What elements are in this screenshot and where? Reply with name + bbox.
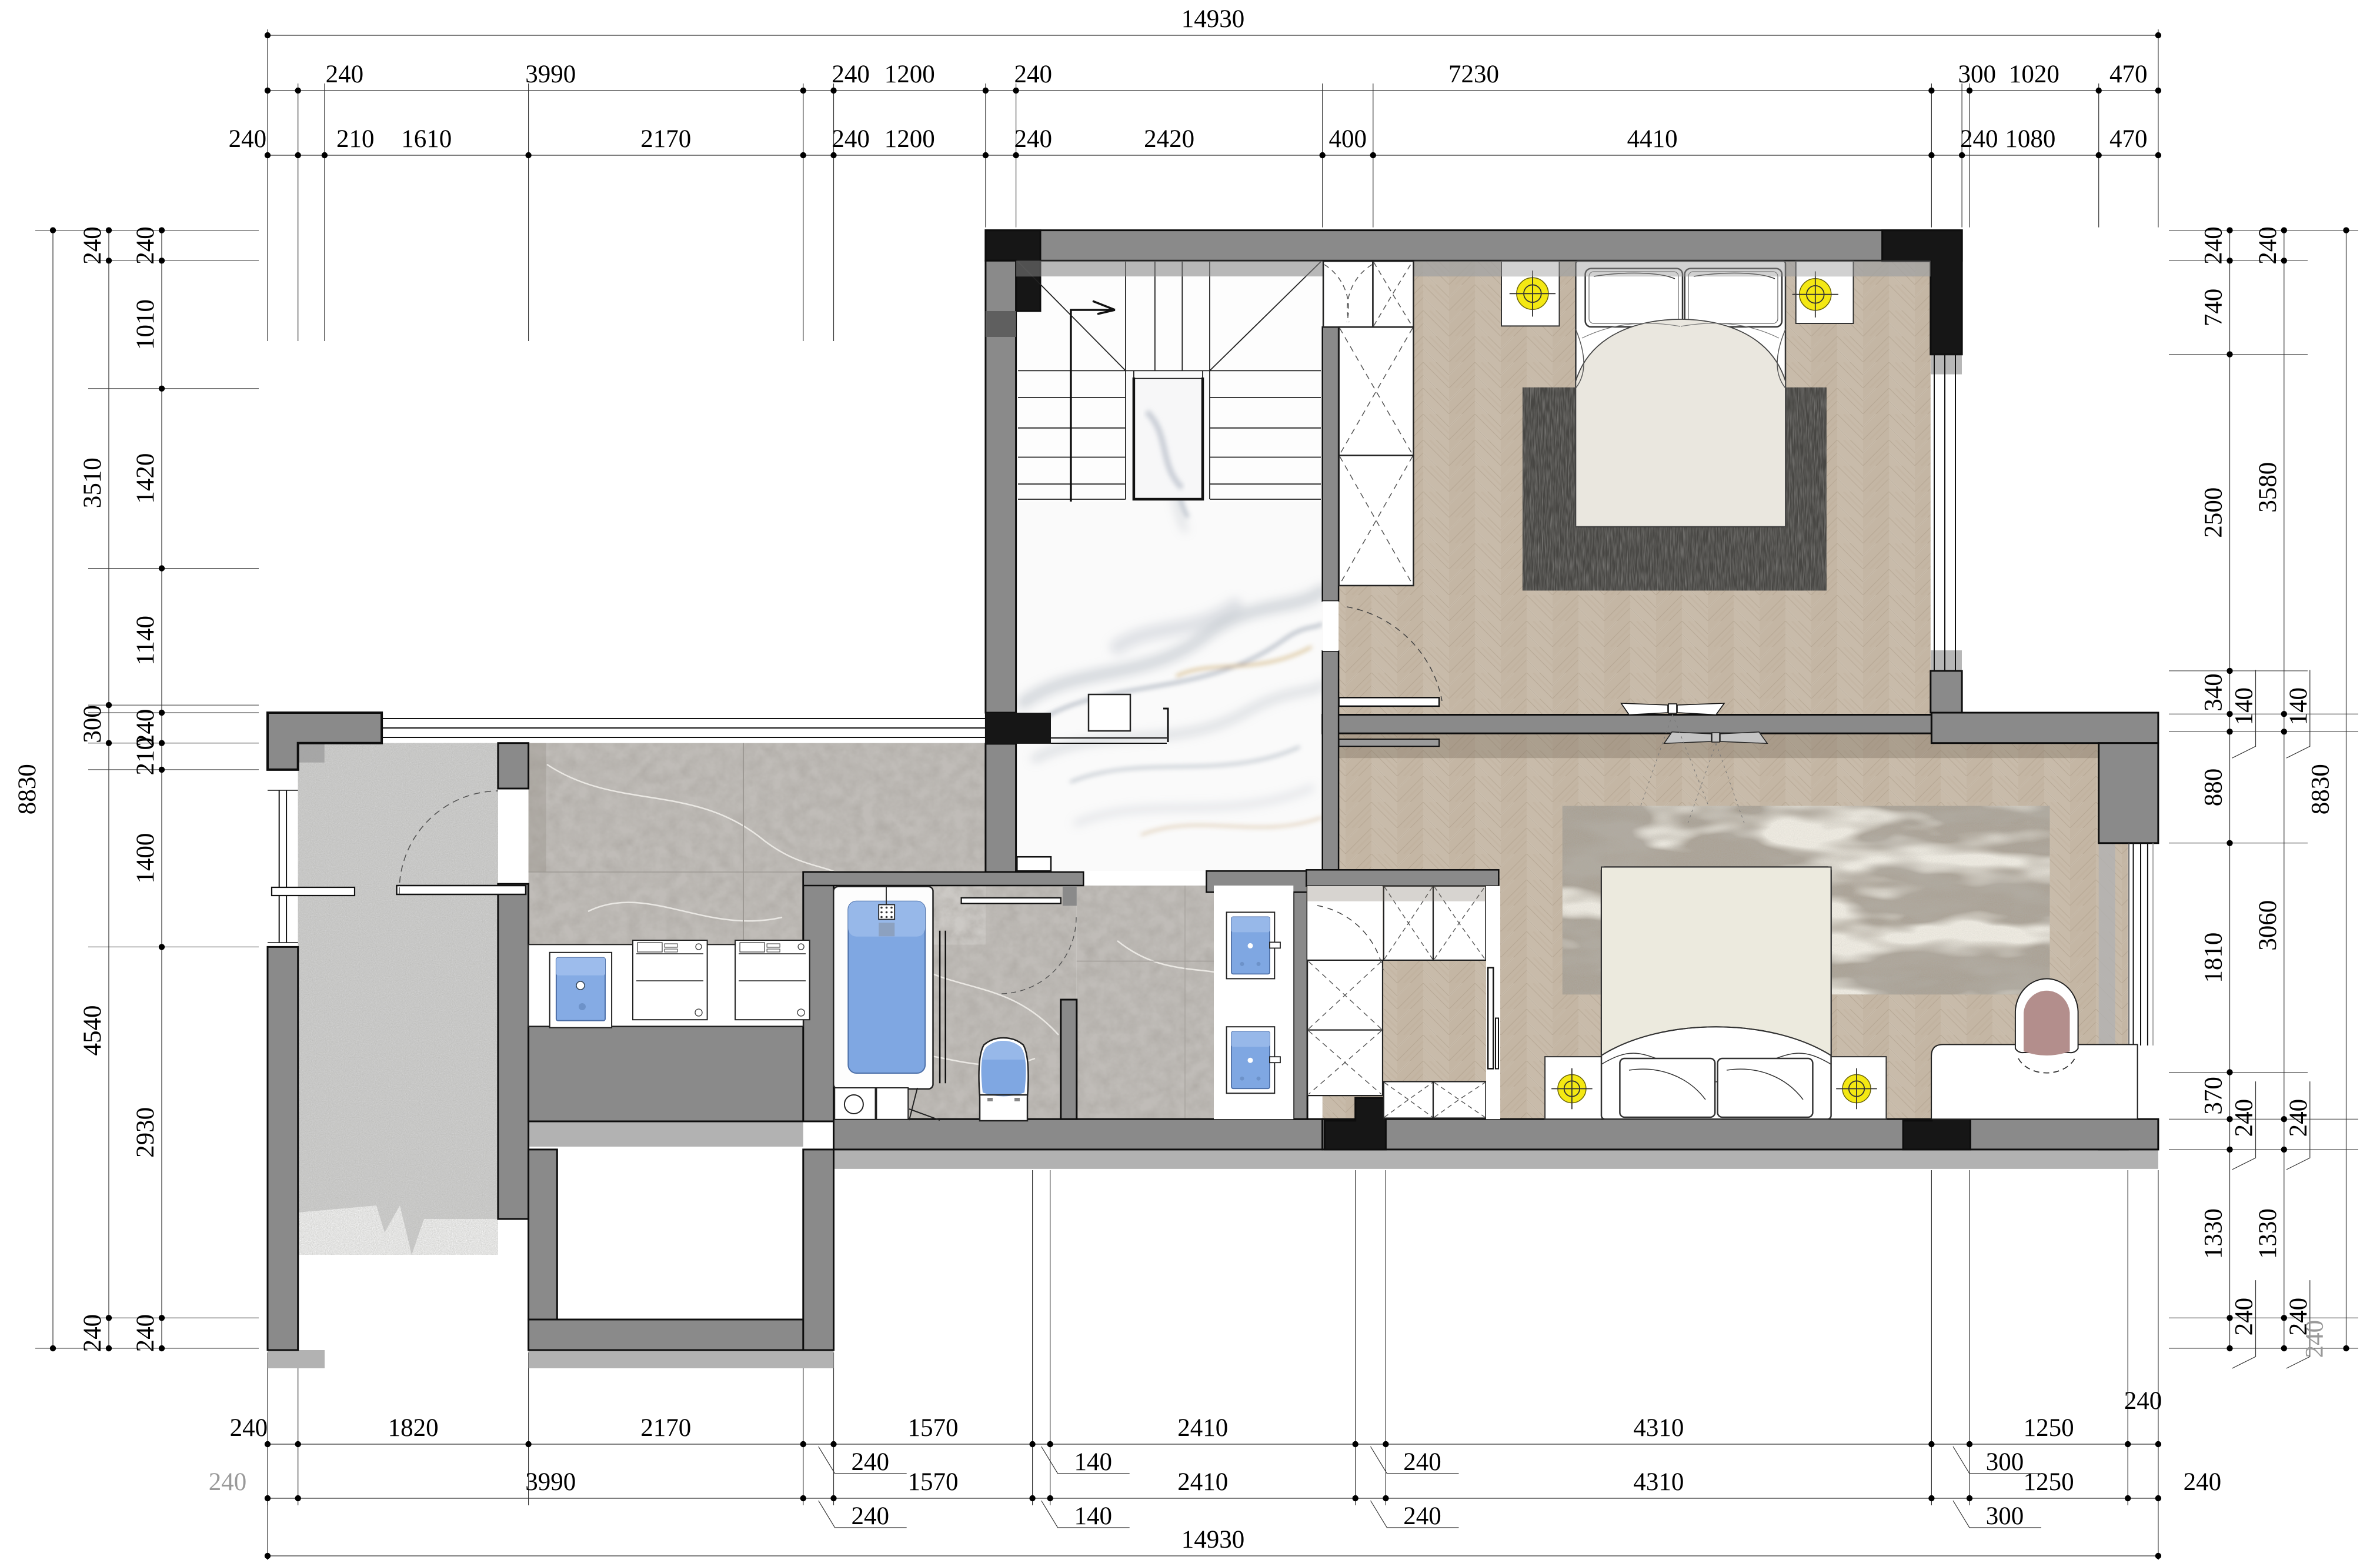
svg-text:7230: 7230 [1448, 61, 1499, 88]
svg-text:400: 400 [1329, 125, 1367, 153]
svg-text:340: 340 [2200, 673, 2228, 711]
svg-text:470: 470 [2109, 61, 2148, 88]
svg-text:3060: 3060 [2254, 900, 2282, 951]
svg-text:240: 240 [1403, 1448, 1441, 1476]
svg-text:240: 240 [79, 1314, 106, 1352]
svg-text:2930: 2930 [132, 1107, 159, 1158]
svg-text:240: 240 [326, 61, 364, 88]
svg-text:1080: 1080 [2005, 125, 2055, 153]
svg-text:240: 240 [2184, 1468, 2222, 1496]
svg-text:240: 240 [1403, 1502, 1441, 1530]
svg-text:1010: 1010 [132, 299, 159, 350]
svg-text:1570: 1570 [908, 1468, 959, 1496]
svg-text:210: 210 [336, 125, 375, 153]
svg-text:240: 240 [851, 1448, 889, 1476]
svg-text:240: 240 [2124, 1387, 2162, 1415]
svg-text:3580: 3580 [2254, 462, 2282, 513]
svg-text:1250: 1250 [2024, 1414, 2074, 1442]
svg-text:240: 240 [2200, 226, 2228, 265]
svg-text:210: 210 [132, 737, 159, 776]
svg-text:1400: 1400 [132, 833, 159, 884]
svg-text:1250: 1250 [2024, 1468, 2074, 1496]
svg-text:1810: 1810 [2200, 933, 2228, 983]
svg-text:4410: 4410 [1627, 125, 1678, 153]
svg-text:3990: 3990 [525, 1468, 576, 1496]
svg-text:2170: 2170 [640, 1414, 691, 1442]
svg-text:2410: 2410 [1177, 1414, 1228, 1442]
svg-text:2500: 2500 [2200, 487, 2228, 538]
svg-text:240: 240 [230, 1414, 268, 1442]
svg-text:3990: 3990 [525, 61, 576, 88]
svg-text:1420: 1420 [132, 453, 159, 504]
svg-text:240: 240 [209, 1468, 247, 1496]
svg-text:240: 240 [1014, 125, 1053, 153]
svg-text:300: 300 [1958, 61, 1996, 88]
svg-text:4310: 4310 [1633, 1468, 1684, 1496]
svg-text:1610: 1610 [401, 125, 452, 153]
svg-text:8830: 8830 [14, 764, 41, 814]
svg-text:1200: 1200 [884, 125, 935, 153]
svg-text:1330: 1330 [2254, 1208, 2282, 1259]
svg-text:240: 240 [79, 226, 106, 265]
svg-text:2410: 2410 [1177, 1468, 1228, 1496]
svg-text:140: 140 [2285, 687, 2312, 726]
svg-text:240: 240 [2285, 1099, 2312, 1137]
svg-text:140: 140 [1074, 1448, 1112, 1476]
svg-text:2170: 2170 [640, 125, 691, 153]
svg-text:300: 300 [79, 705, 106, 743]
svg-text:1330: 1330 [2200, 1208, 2228, 1259]
svg-text:1200: 1200 [884, 61, 935, 88]
svg-text:14930: 14930 [1181, 5, 1245, 33]
svg-text:1820: 1820 [388, 1414, 439, 1442]
svg-text:240: 240 [1014, 61, 1053, 88]
svg-text:240: 240 [132, 1314, 159, 1352]
svg-text:470: 470 [2109, 125, 2148, 153]
svg-text:740: 740 [2200, 289, 2228, 327]
svg-text:240: 240 [132, 226, 159, 265]
svg-text:4540: 4540 [79, 1006, 106, 1056]
svg-text:880: 880 [2200, 769, 2228, 807]
svg-text:300: 300 [1986, 1502, 2024, 1530]
svg-text:240: 240 [2231, 1099, 2258, 1137]
svg-text:240: 240 [2301, 1320, 2329, 1358]
svg-text:8830: 8830 [2307, 764, 2335, 814]
svg-text:240: 240 [2231, 1298, 2258, 1336]
svg-text:4310: 4310 [1633, 1414, 1684, 1442]
svg-text:240: 240 [832, 61, 870, 88]
svg-text:1020: 1020 [2009, 61, 2059, 88]
svg-text:240: 240 [832, 125, 870, 153]
svg-text:1570: 1570 [908, 1414, 959, 1442]
svg-text:240: 240 [1960, 125, 1998, 153]
svg-text:240: 240 [229, 125, 267, 153]
svg-text:14930: 14930 [1181, 1526, 1245, 1554]
svg-text:140: 140 [2231, 687, 2258, 726]
svg-text:300: 300 [1986, 1448, 2024, 1476]
svg-text:240: 240 [851, 1502, 889, 1530]
svg-text:240: 240 [2254, 226, 2282, 265]
svg-text:3510: 3510 [79, 457, 106, 508]
svg-text:370: 370 [2200, 1077, 2228, 1115]
svg-text:1140: 1140 [132, 616, 159, 665]
svg-text:140: 140 [1074, 1502, 1112, 1530]
svg-text:2420: 2420 [1144, 125, 1194, 153]
